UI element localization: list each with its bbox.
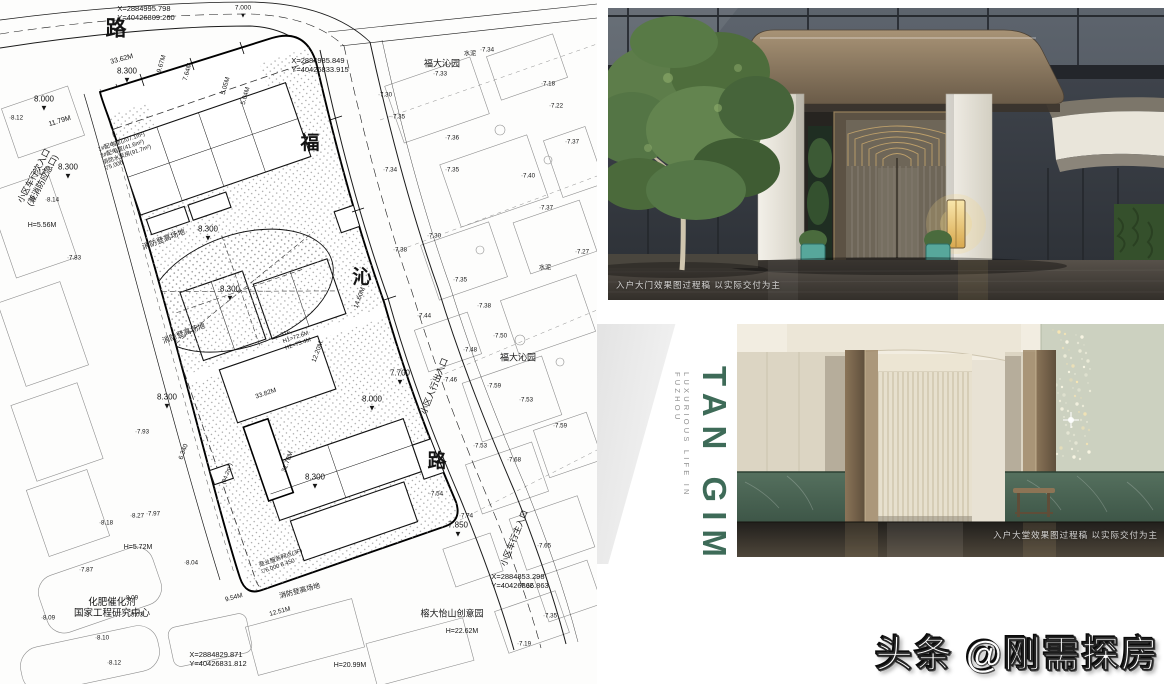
entrance-render-caption: 入户大门效果图过程稿 以实际交付为主 bbox=[616, 279, 781, 291]
site-plan-drawing bbox=[0, 0, 597, 684]
entrance-render-art bbox=[608, 8, 1164, 300]
brand-block: LUXURIOUS LIFE IN FUZHOU TAN GIM bbox=[597, 324, 737, 564]
lobby-render: 入户大堂效果图过程稿 以实际交付为主 bbox=[737, 324, 1164, 557]
watermark: 头条 @刚需探房 bbox=[876, 624, 1160, 678]
page: X=2884995.798 Y=40426809.260路7.000 ▼小区车行… bbox=[0, 0, 1164, 684]
brand-title: TAN GIM bbox=[695, 366, 733, 566]
brand-subtitle: LUXURIOUS LIFE IN FUZHOU bbox=[673, 372, 691, 542]
lobby-render-caption: 入户大堂效果图过程稿 以实际交付为主 bbox=[993, 529, 1158, 541]
lobby-render-art bbox=[737, 324, 1164, 557]
site-plan: X=2884995.798 Y=40426809.260路7.000 ▼小区车行… bbox=[0, 0, 597, 684]
entrance-render: 入户大门效果图过程稿 以实际交付为主 bbox=[608, 8, 1164, 300]
lobby-center-wall bbox=[878, 354, 972, 522]
